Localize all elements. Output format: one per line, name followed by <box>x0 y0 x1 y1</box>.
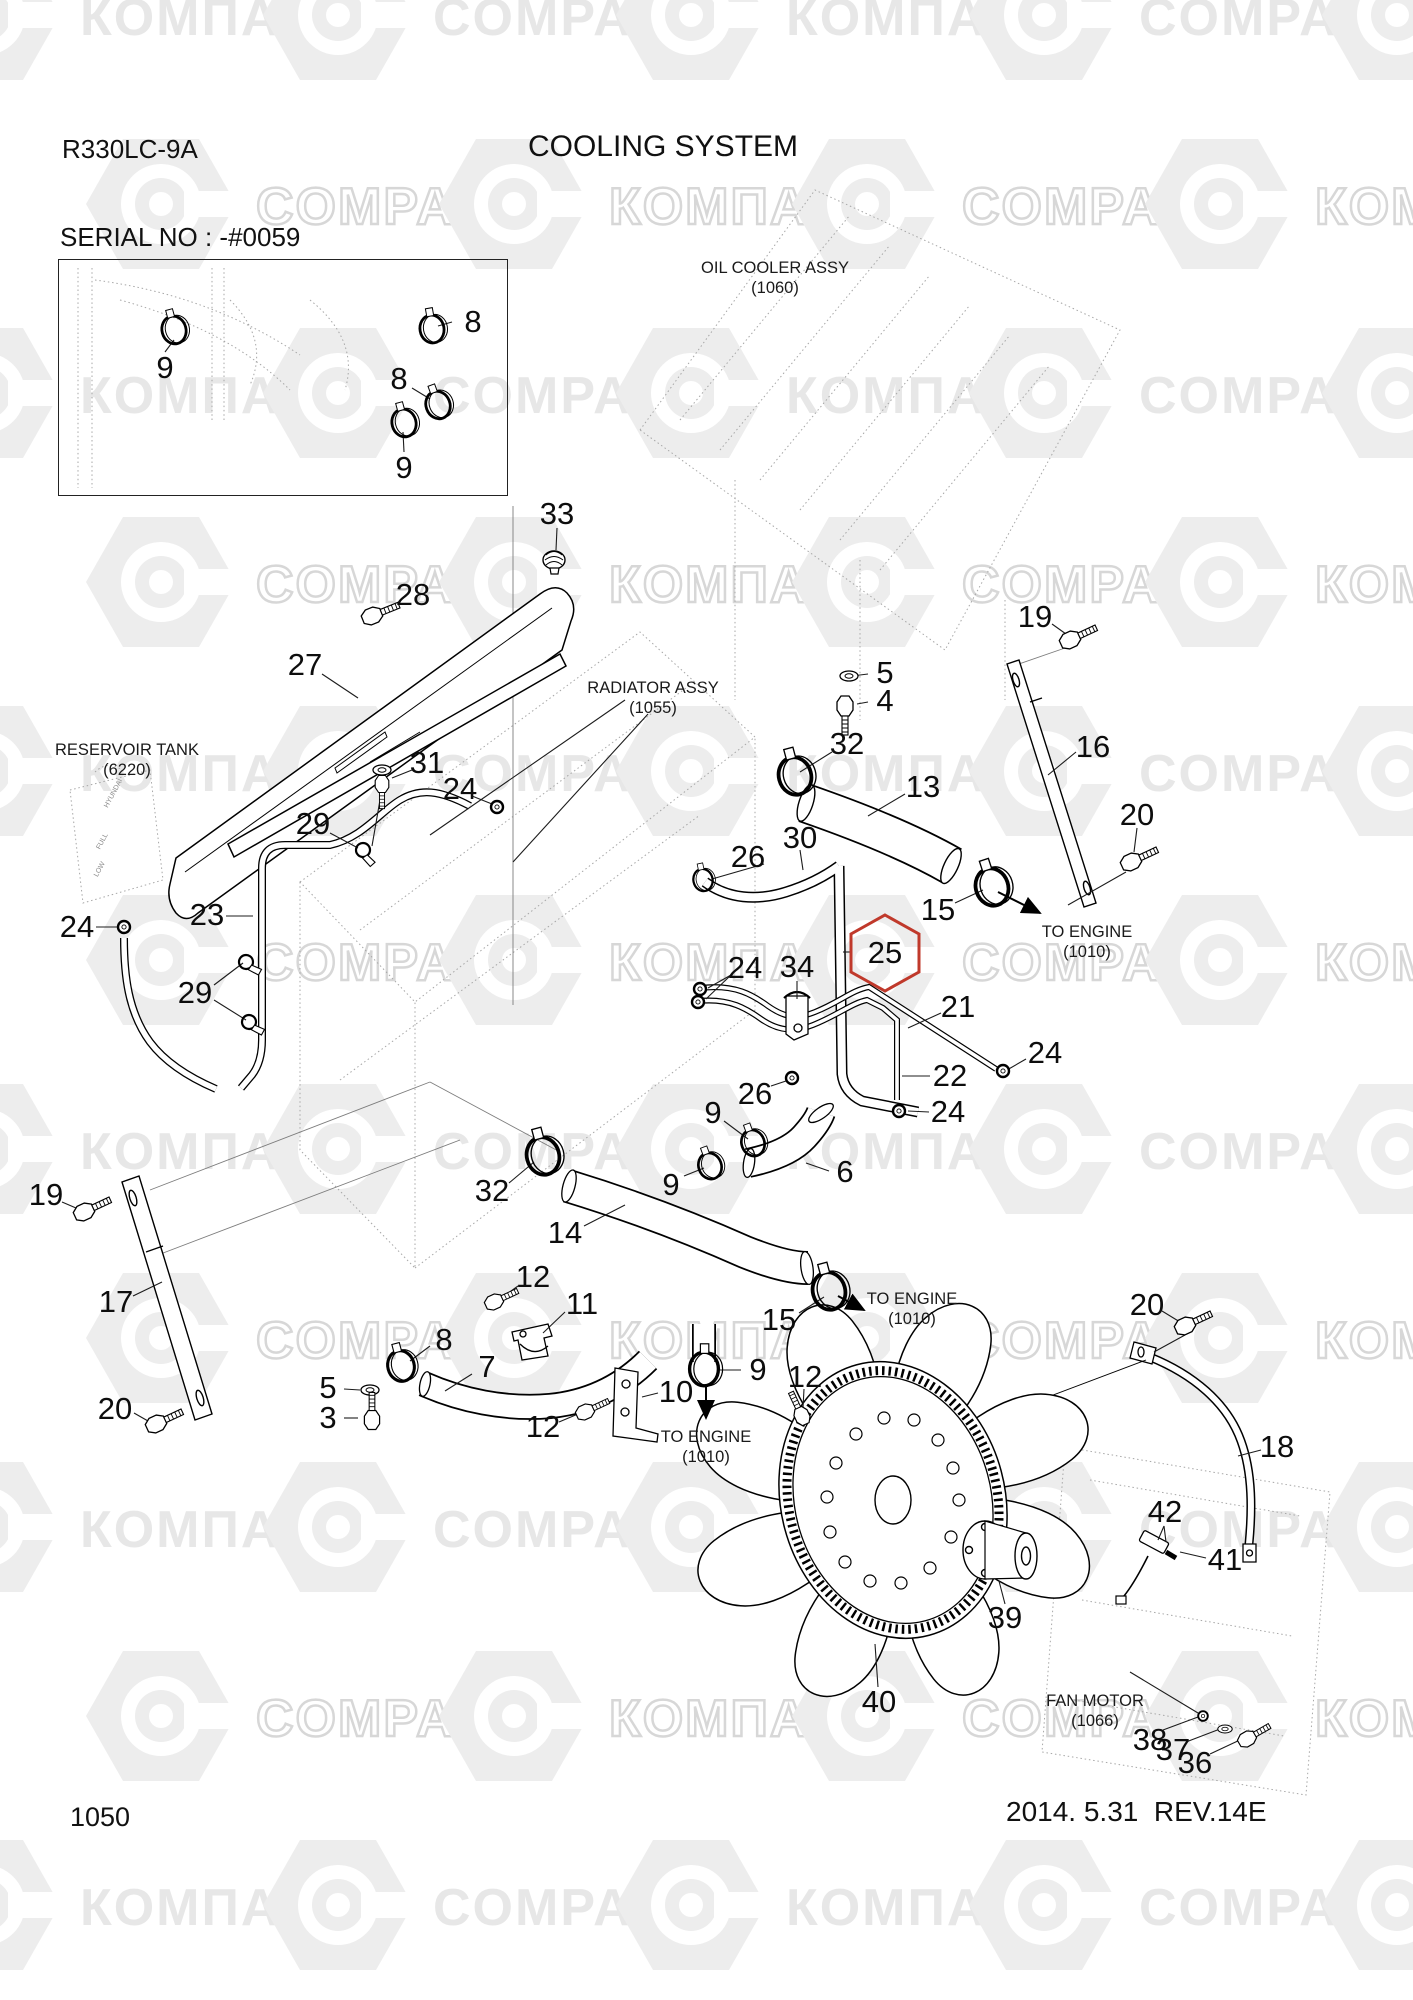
fan-motor-label: FAN MOTOR (1066) <box>1046 1691 1144 1731</box>
part-callout-9: 9 <box>749 1352 766 1388</box>
part-callout-20: 20 <box>1120 797 1154 833</box>
part-callout-29: 29 <box>296 806 330 842</box>
model-number: R330LC-9A <box>62 134 198 165</box>
strap-16-shape <box>1007 660 1096 907</box>
part-callout-6: 6 <box>836 1154 853 1190</box>
part-callout-22: 22 <box>933 1058 967 1094</box>
to-engine-note-2: TO ENGINE (1010) <box>867 1289 957 1329</box>
part-callout-26: 26 <box>738 1076 772 1112</box>
radiator-assy-code: (1055) <box>587 698 718 718</box>
page-title: COOLING SYSTEM <box>528 130 798 164</box>
part-callout-9: 9 <box>662 1167 679 1203</box>
part-callout-30: 30 <box>783 820 817 856</box>
strap-17-shape <box>122 1176 212 1420</box>
ghost-edges <box>150 506 1065 1258</box>
part-callout-3: 3 <box>319 1400 336 1436</box>
part-callout-24: 24 <box>1028 1035 1062 1071</box>
to-engine-note-2-text: TO ENGINE <box>867 1289 957 1309</box>
serial-number-label: SERIAL NO : -#0059 <box>60 222 300 253</box>
parts-diagram-page: { "header": { "model": "R330LC-9A", "tit… <box>0 0 1413 2000</box>
part-callout-8: 8 <box>390 361 407 397</box>
part-callout-31: 31 <box>410 745 444 781</box>
part-callout-27: 27 <box>288 647 322 683</box>
part-callout-34: 34 <box>780 949 814 985</box>
part-callout-10: 10 <box>659 1374 693 1410</box>
part-callout-4: 4 <box>876 683 893 719</box>
part-callout-9: 9 <box>156 350 173 386</box>
part-callout-36: 36 <box>1178 1745 1212 1781</box>
part-callout-24: 24 <box>60 909 94 945</box>
to-engine-note-2-code: (1010) <box>867 1309 957 1329</box>
reservoir-tank-code: (6220) <box>55 760 199 780</box>
page-number: 1050 <box>70 1802 130 1833</box>
bracket-34-shape <box>784 992 810 1040</box>
part-callout-25-highlighted: 25 <box>868 935 902 971</box>
fan-motor-code: (1066) <box>1046 1711 1144 1731</box>
to-engine-note-1: TO ENGINE (1010) <box>1042 922 1132 962</box>
part-callout-13: 13 <box>906 769 940 805</box>
part-callout-40: 40 <box>862 1684 896 1720</box>
part-callout-20: 20 <box>1130 1287 1164 1323</box>
part-callout-28: 28 <box>396 577 430 613</box>
part-callout-12: 12 <box>516 1259 550 1295</box>
part-callout-41: 41 <box>1208 1542 1242 1578</box>
oil-cooler-assy-label: OIL COOLER ASSY (1060) <box>701 258 849 298</box>
part-callout-15: 15 <box>921 892 955 928</box>
fan-40-shape <box>683 1290 1103 1710</box>
part-callout-12: 12 <box>526 1409 560 1445</box>
date-revision: 2014. 5.31 REV.14E <box>1006 1796 1267 1828</box>
hardware-icons <box>72 306 1274 1750</box>
revision-date: 2014. 5.31 <box>1006 1796 1138 1827</box>
oil-cooler-assy-name: OIL COOLER ASSY <box>701 258 849 278</box>
part-callout-9: 9 <box>704 1095 721 1131</box>
fan-motor-name: FAN MOTOR <box>1046 1691 1144 1711</box>
part-callout-19: 19 <box>29 1177 63 1213</box>
oil-cooler-assy-code: (1060) <box>701 278 849 298</box>
to-engine-note-3: TO ENGINE (1010) <box>661 1427 751 1467</box>
part-callout-21: 21 <box>941 989 975 1025</box>
part-callout-33: 33 <box>540 496 574 532</box>
bracket-10-shape <box>613 1368 658 1442</box>
to-engine-note-3-code: (1010) <box>661 1447 751 1467</box>
part-callout-17: 17 <box>99 1284 133 1320</box>
part-callout-14: 14 <box>548 1215 582 1251</box>
part-callout-24: 24 <box>443 771 477 807</box>
reservoir-tank-name: RESERVOIR TANK <box>55 740 199 760</box>
part-callout-11: 11 <box>566 1286 598 1322</box>
radiator-assy-label: RADIATOR ASSY (1055) <box>587 678 718 718</box>
serial-detail-box <box>58 259 508 496</box>
revision-code: REV.14E <box>1154 1796 1267 1827</box>
to-engine-note-1-code: (1010) <box>1042 942 1132 962</box>
part-callout-42: 42 <box>1148 1494 1182 1530</box>
part-callout-26: 26 <box>731 839 765 875</box>
part-callout-32: 32 <box>830 726 864 762</box>
part-callout-29: 29 <box>178 975 212 1011</box>
part-callout-39: 39 <box>988 1600 1022 1636</box>
radiator-assy-name: RADIATOR ASSY <box>587 678 718 698</box>
part-callout-8: 8 <box>464 304 481 340</box>
reservoir-tank-label: RESERVOIR TANK (6220) <box>55 740 199 780</box>
part-callout-16: 16 <box>1076 729 1110 765</box>
part-callout-24: 24 <box>931 1094 965 1130</box>
to-engine-note-3-text: TO ENGINE <box>661 1427 751 1447</box>
part-callout-18: 18 <box>1260 1429 1294 1465</box>
part-callout-23: 23 <box>190 897 224 933</box>
hose-14-shape <box>559 1169 815 1286</box>
part-callout-8: 8 <box>435 1322 452 1358</box>
part-callout-15: 15 <box>762 1302 796 1338</box>
to-engine-note-1-text: TO ENGINE <box>1042 922 1132 942</box>
part-callout-32: 32 <box>475 1173 509 1209</box>
part-callout-24: 24 <box>728 950 762 986</box>
part-callout-20: 20 <box>98 1391 132 1427</box>
part-callout-9: 9 <box>395 450 412 486</box>
part-callout-7: 7 <box>478 1349 495 1385</box>
sensor-41-shape <box>1116 1530 1176 1604</box>
part-callout-12: 12 <box>788 1359 822 1395</box>
part-callout-19: 19 <box>1018 599 1052 635</box>
